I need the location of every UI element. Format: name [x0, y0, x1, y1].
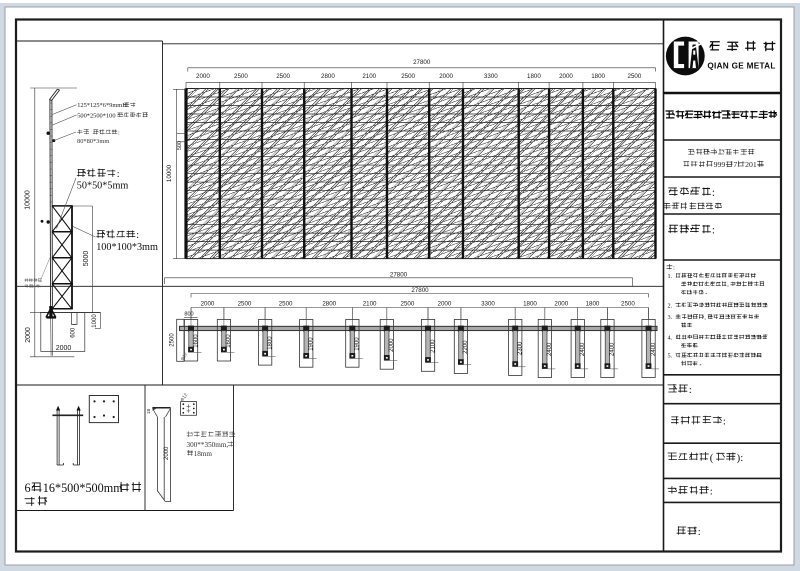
svg-text:2000: 2000 — [164, 446, 170, 460]
svg-text:18: 18 — [146, 409, 151, 415]
svg-text:10000: 10000 — [166, 164, 173, 182]
svg-text:500: 500 — [177, 141, 183, 150]
svg-text:6: 6 — [25, 481, 31, 495]
svg-text:2400: 2400 — [651, 342, 657, 356]
svg-text::: : — [689, 384, 692, 396]
svg-text:2000: 2000 — [56, 345, 72, 352]
svg-text:4.: 4. — [668, 334, 673, 341]
svg-text:1.: 1. — [668, 273, 673, 280]
svg-text:7: 7 — [733, 160, 737, 169]
svg-text:2000: 2000 — [196, 73, 210, 80]
svg-text:27800: 27800 — [390, 271, 408, 278]
svg-text:1600: 1600 — [226, 334, 232, 348]
svg-text:2500: 2500 — [401, 301, 415, 308]
svg-text:2400: 2400 — [547, 342, 553, 356]
svg-text:300**350mm,: 300**350mm, — [187, 441, 229, 449]
svg-text::: : — [712, 187, 715, 199]
svg-text:2500: 2500 — [238, 301, 252, 308]
svg-text:5000: 5000 — [83, 251, 90, 267]
svg-text:2800: 2800 — [321, 73, 335, 80]
svg-text:1900: 1900 — [309, 337, 315, 351]
svg-text:999: 999 — [714, 160, 726, 169]
svg-text:27800: 27800 — [413, 59, 431, 66]
svg-text:5.: 5. — [668, 353, 673, 360]
svg-text::: : — [673, 265, 675, 272]
svg-text::: : — [117, 169, 120, 180]
svg-text:80*80*3mm: 80*80*3mm — [77, 138, 109, 145]
svg-text::: : — [698, 526, 701, 538]
svg-text:1000: 1000 — [92, 314, 98, 328]
svg-text:1800: 1800 — [523, 301, 537, 308]
svg-text:2000: 2000 — [389, 338, 395, 352]
svg-text:2400: 2400 — [580, 342, 586, 356]
svg-text:2000: 2000 — [25, 327, 32, 343]
svg-text:16*500*500mm: 16*500*500mm — [43, 481, 123, 495]
svg-text:2100: 2100 — [430, 339, 436, 353]
svg-text:201: 201 — [745, 160, 757, 169]
svg-text:100*100*3mm: 100*100*3mm — [96, 242, 158, 253]
svg-text::: : — [712, 225, 715, 237]
svg-text:2500: 2500 — [234, 73, 248, 80]
svg-text:27800: 27800 — [411, 287, 429, 294]
svg-text:2000: 2000 — [559, 73, 573, 80]
svg-text:3300: 3300 — [481, 301, 495, 308]
svg-text::: : — [136, 230, 139, 241]
svg-text:QIAN GE METAL: QIAN GE METAL — [707, 62, 775, 71]
svg-text:2000: 2000 — [201, 301, 215, 308]
svg-text:1800: 1800 — [527, 73, 541, 80]
svg-text:.: . — [40, 284, 41, 289]
svg-text:2500: 2500 — [170, 333, 176, 347]
svg-text:2000: 2000 — [439, 73, 453, 80]
svg-text:2800: 2800 — [322, 301, 336, 308]
svg-text:1900: 1900 — [355, 337, 361, 351]
svg-text:3.: 3. — [668, 314, 673, 321]
svg-text:1800: 1800 — [586, 301, 600, 308]
svg-text:(: ( — [710, 452, 714, 464]
svg-text:2400: 2400 — [610, 342, 616, 356]
svg-text:):: ): — [737, 452, 744, 464]
svg-text:50*50*5mm: 50*50*5mm — [77, 181, 129, 192]
svg-text:600: 600 — [70, 327, 76, 338]
svg-text:1600: 1600 — [193, 334, 199, 348]
svg-text:2500: 2500 — [401, 73, 415, 80]
svg-text:2500: 2500 — [276, 73, 290, 80]
svg-text:2.: 2. — [668, 302, 673, 309]
svg-text:800: 800 — [184, 311, 193, 317]
svg-text:1800: 1800 — [267, 336, 273, 350]
svg-text:2000: 2000 — [438, 301, 452, 308]
svg-text:18mm: 18mm — [194, 450, 213, 458]
svg-text::: : — [118, 129, 120, 136]
svg-text:1800: 1800 — [591, 73, 605, 80]
svg-text:2500: 2500 — [279, 301, 293, 308]
svg-text:125*125*6*9mmH: 125*125*6*9mmH — [77, 102, 127, 109]
svg-text::: : — [723, 416, 726, 428]
svg-text:2100: 2100 — [362, 73, 376, 80]
svg-text:3300: 3300 — [484, 73, 498, 80]
svg-text:2500: 2500 — [628, 73, 642, 80]
svg-text:2000: 2000 — [554, 301, 568, 308]
svg-text:2500: 2500 — [621, 301, 635, 308]
svg-text::: : — [710, 486, 713, 498]
svg-text:500*2500*100: 500*2500*100 — [77, 112, 115, 119]
svg-text:2100: 2100 — [363, 301, 377, 308]
svg-text:2300: 2300 — [518, 341, 524, 355]
svg-text:10000: 10000 — [24, 190, 31, 210]
svg-text:2200: 2200 — [463, 340, 469, 354]
